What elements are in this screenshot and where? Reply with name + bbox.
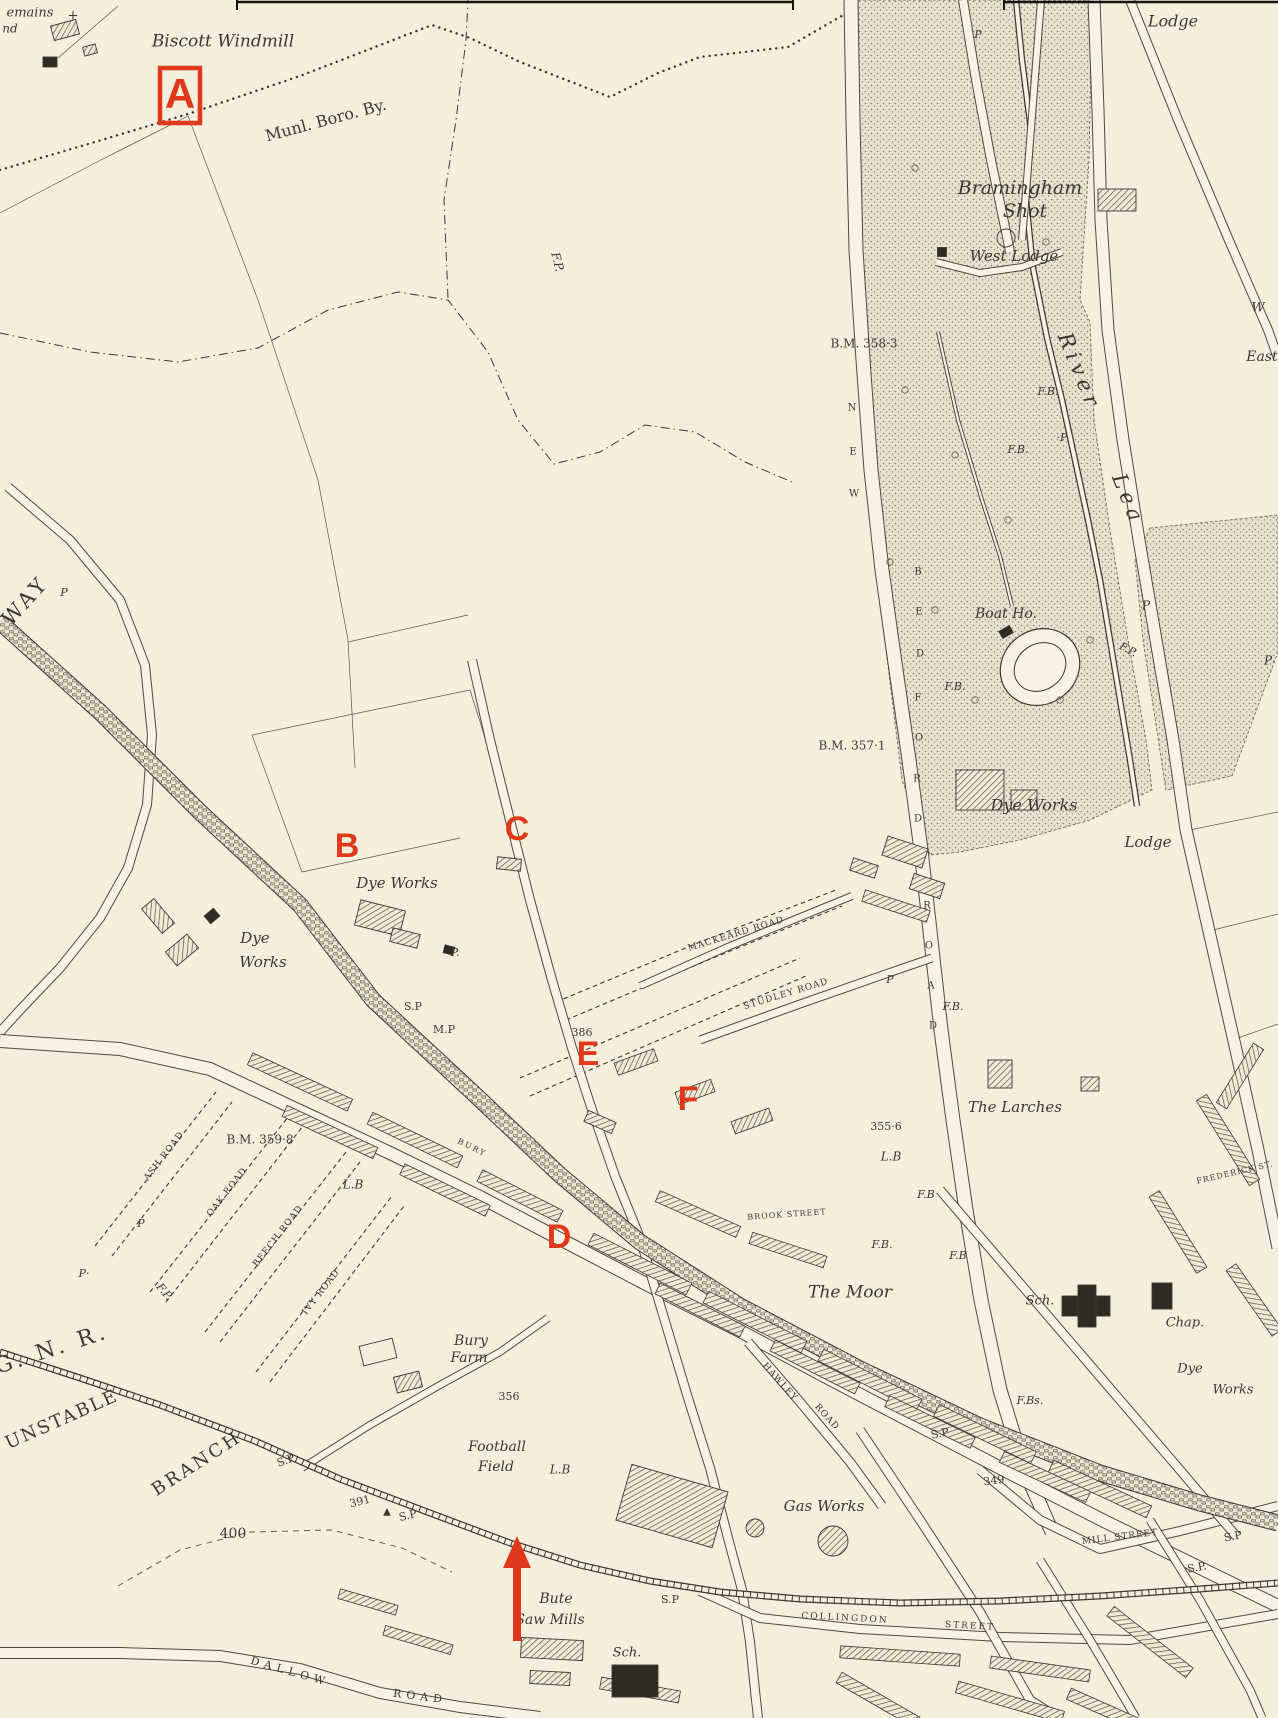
building [1081,1077,1099,1091]
map-label: Bute [538,1591,572,1607]
building [496,857,521,871]
building [1152,1283,1172,1309]
map-label: ▲ [383,1507,391,1518]
building [1098,189,1136,211]
map-label: Dye Works [990,796,1078,815]
map-label: D [914,814,922,825]
marker-letter-B[interactable]: B [335,827,360,865]
map-label: The Larches [968,1098,1062,1116]
marker-letter-D[interactable]: D [547,1218,572,1256]
map-label: 400 [220,1526,247,1542]
map-label: F.B. [1007,443,1029,456]
map-label: P [1263,654,1273,668]
map-label: F.B. [944,680,966,693]
map-label: Works [1212,1383,1253,1398]
building [1081,1077,1099,1091]
map-label: B.M. 357·1 [819,739,886,753]
building [530,1670,571,1685]
map-label: P. [450,946,460,959]
map-label: O [925,941,933,952]
map-label: O [915,733,923,744]
map-label: 356 [499,1390,520,1403]
map-label: East [1245,349,1278,365]
map-label: Bury [453,1333,489,1349]
map-label: F.Bs. [1016,1394,1044,1407]
map-label: F.B. [1037,385,1059,398]
building [496,857,521,871]
map-label: Dye [1176,1362,1203,1377]
building [612,1665,658,1697]
map-label: Dye [239,929,270,947]
map-label: West Lodge [970,247,1059,265]
map-label: S.P [404,1000,423,1013]
map-label: B.M. 359·8 [227,1133,294,1147]
map-label: E [915,607,922,618]
building [938,248,947,257]
map-label: Lodge [1123,833,1171,851]
building [988,1060,1012,1088]
marker-letter-C[interactable]: C [505,810,530,848]
map-label: L.B [342,1178,364,1192]
map-label: P [1141,599,1151,613]
map-label: P [136,1217,145,1230]
map-label: S.P [661,1593,680,1606]
map-label: P [973,28,982,41]
map-label: emains [7,6,54,21]
map-label: B.M. 358·3 [831,337,898,351]
building [43,57,57,67]
map-label: The Moor [808,1283,893,1303]
map-label: Works [239,953,287,971]
map-label: A [926,981,935,992]
marker-letter-A[interactable]: A [165,70,195,117]
map-label: Saw Mills [515,1612,584,1628]
building [746,1519,764,1537]
map-label: F.B [916,1188,935,1201]
map-label: ·P [1057,431,1068,444]
historic-map-screenshot: emainsnd+Biscott WindmillMunl. Boro. By.… [0,0,1278,1718]
building [1078,1285,1096,1327]
map-label: F.B [948,1249,967,1262]
building [938,248,947,257]
building [530,1670,571,1685]
building [818,1526,848,1556]
building [43,57,57,67]
map-label: Sch. [1026,1294,1055,1309]
map-label: Bramingham [957,177,1082,199]
map-label: D [929,1021,937,1032]
map-label: Dye Works [355,874,438,892]
map-label: D [916,649,924,660]
map-label: Gas Works [784,1497,865,1515]
map-label: Farm [449,1350,487,1366]
building [1152,1283,1172,1309]
map-label: Chap. [1166,1316,1205,1331]
map-label: Biscott Windmill [151,32,294,52]
map-label: B [914,567,921,578]
map-label: Lodge [1147,12,1198,31]
map-label: Football [467,1439,526,1455]
map-label: R [923,901,931,912]
map-label: R [913,774,921,785]
marker-letter-F[interactable]: F [678,1080,699,1118]
map-label: P [885,973,894,986]
map-label: L.B [549,1463,571,1477]
building [988,1060,1012,1088]
map-label: P· [78,1267,90,1280]
map-label: E [849,447,856,458]
building [521,1637,584,1660]
map-label: L.B [880,1150,902,1164]
map-label: M.P [433,1023,456,1036]
map-canvas: emainsnd+Biscott WindmillMunl. Boro. By.… [0,0,1278,1718]
map-label: W [1251,301,1266,316]
map-label: F.B. [871,1238,893,1251]
map-label: W [849,489,860,500]
map-label: Boat Ho. [974,606,1037,622]
marker-letter-E[interactable]: E [577,1035,600,1073]
map-label: Shot [1003,200,1048,222]
map-label: F.B. [942,1000,964,1013]
building [612,1665,658,1697]
building [521,1637,584,1660]
building [1078,1285,1096,1327]
map-label: F [915,693,922,704]
map-label: Sch. [613,1646,642,1661]
map-label: 355·6 [870,1120,902,1133]
building [1098,189,1136,211]
map-label: + [68,9,79,24]
map-label: N [848,403,857,414]
map-label: nd [2,22,18,36]
map-label: P [59,586,68,599]
map-label: Field [477,1459,514,1475]
